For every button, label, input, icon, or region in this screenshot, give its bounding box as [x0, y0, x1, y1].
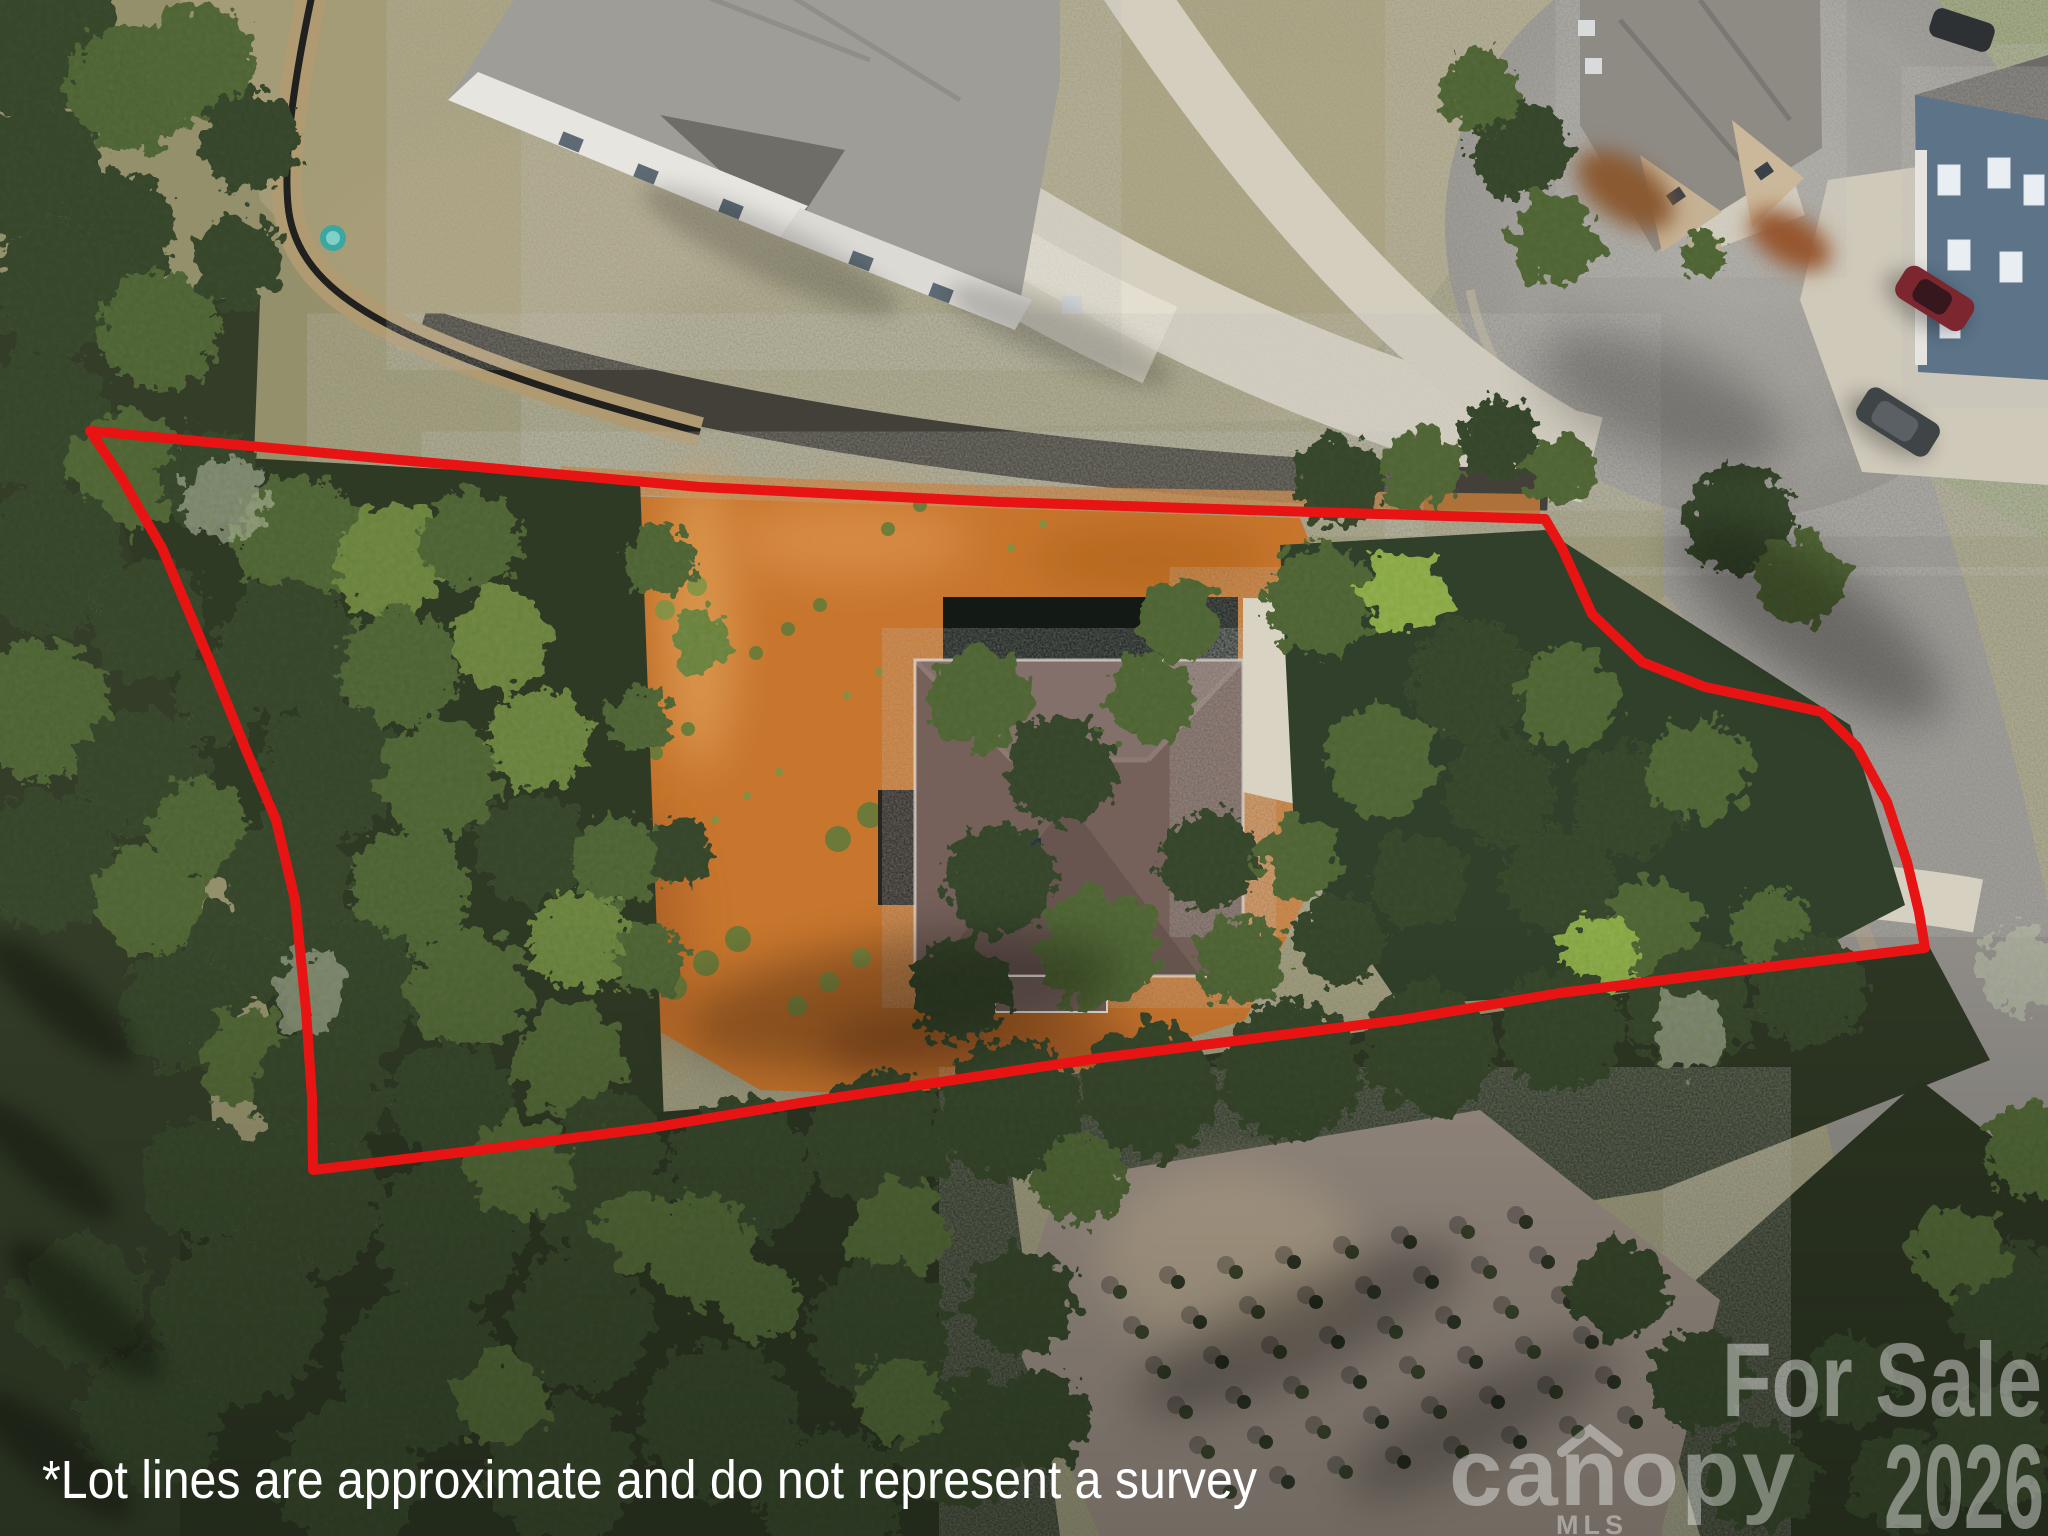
bottom-vignette [0, 0, 2048, 1536]
year-text: 2026 [1884, 1420, 2044, 1536]
aerial-photo: *Lot lines are approximate and do not re… [0, 0, 2048, 1536]
disclaimer-text: *Lot lines are approximate and do not re… [42, 1450, 1257, 1510]
scene-canvas: *Lot lines are approximate and do not re… [0, 0, 2048, 1536]
mls-text: MLS [1556, 1510, 1628, 1536]
watermark-canopy-mls: canopy MLS [1449, 1419, 1797, 1536]
